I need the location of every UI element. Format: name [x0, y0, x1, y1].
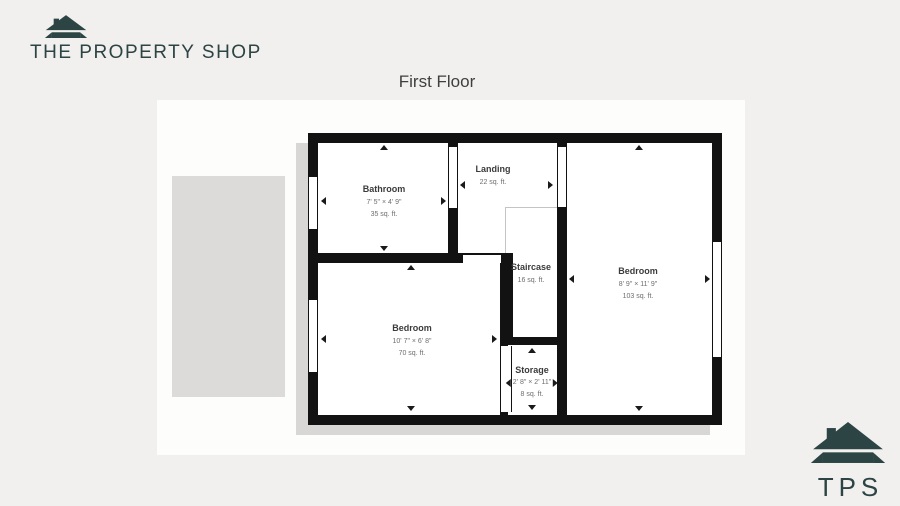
- tps-house-icon: [808, 422, 888, 466]
- door-opening-bedroom-right: [557, 147, 567, 207]
- window-bathroom: [308, 177, 318, 229]
- room-label-staircase: Staircase 16 sq. ft.: [511, 263, 551, 285]
- page: { "brand": { "name": "THE PROPERTY SHOP"…: [0, 0, 900, 506]
- room-label-bedroom-left: Bedroom 10' 7" × 6' 8" 70 sq. ft.: [392, 324, 432, 357]
- measure-arrow-left-icon: [321, 335, 326, 343]
- measure-arrow-down-icon: [380, 246, 388, 251]
- measure-arrow-up-icon: [528, 348, 536, 353]
- room-name: Staircase: [511, 263, 551, 273]
- room-label-storage: Storage 2' 8" × 2' 11" 8 sq. ft.: [506, 366, 558, 399]
- window-bedroom-right: [712, 242, 722, 357]
- tps-logo: TPS: [806, 422, 890, 503]
- measure-arrow-right-icon: [548, 181, 553, 189]
- room-area: 70 sq. ft.: [392, 350, 432, 358]
- room-area: 16 sq. ft.: [511, 277, 551, 285]
- room-area: 22 sq. ft.: [476, 179, 511, 187]
- floorplan: Bathroom 7' 5" × 4' 9" 35 sq. ft. Landin…: [308, 133, 722, 425]
- measure-arrow-down-icon: [407, 406, 415, 411]
- room-area: 8 sq. ft.: [506, 391, 558, 399]
- room-area: 103 sq. ft.: [618, 293, 658, 301]
- room-name: Bathroom: [363, 185, 406, 195]
- room-area: 35 sq. ft.: [363, 211, 406, 219]
- room-label-bathroom: Bathroom 7' 5" × 4' 9" 35 sq. ft.: [363, 185, 406, 218]
- measure-arrow-down-icon: [528, 405, 536, 410]
- door-opening-bedroom-left: [463, 254, 501, 263]
- measure-arrow-left-icon: [569, 275, 574, 283]
- room-dims: 8' 9" × 11' 9": [618, 281, 658, 289]
- measure-arrow-up-icon: [407, 265, 415, 270]
- room-dims: 7' 5" × 4' 9": [363, 199, 406, 207]
- window-bedroom-left: [308, 300, 318, 372]
- measure-arrow-up-icon: [635, 145, 643, 150]
- measure-arrow-right-icon: [553, 379, 558, 387]
- tps-text: TPS: [806, 472, 890, 503]
- measure-arrow-down-icon: [635, 406, 643, 411]
- brand-house-icon: [44, 14, 88, 40]
- measure-arrow-right-icon: [492, 335, 497, 343]
- measure-arrow-left-icon: [321, 197, 326, 205]
- measure-arrow-right-icon: [441, 197, 446, 205]
- room-name: Storage: [506, 366, 558, 376]
- room-name: Landing: [476, 165, 511, 175]
- adjacent-structure-area: [172, 176, 285, 397]
- room-dims: 10' 7" × 6' 8": [392, 338, 432, 346]
- measure-arrow-right-icon: [705, 275, 710, 283]
- room-name: Bedroom: [392, 324, 432, 334]
- measure-arrow-up-icon: [380, 145, 388, 150]
- room-label-bedroom-right: Bedroom 8' 9" × 11' 9" 103 sq. ft.: [618, 267, 658, 300]
- door-opening-bathroom: [448, 147, 458, 208]
- measure-arrow-left-icon: [506, 379, 511, 387]
- brand-name: THE PROPERTY SHOP: [30, 42, 262, 64]
- floor-title: First Floor: [337, 72, 537, 92]
- room-dims: 2' 8" × 2' 11": [513, 379, 551, 387]
- room-name: Bedroom: [618, 267, 658, 277]
- room-label-landing: Landing 22 sq. ft.: [476, 165, 511, 187]
- measure-arrow-left-icon: [460, 181, 465, 189]
- wall-staircase-bottom: [505, 337, 558, 345]
